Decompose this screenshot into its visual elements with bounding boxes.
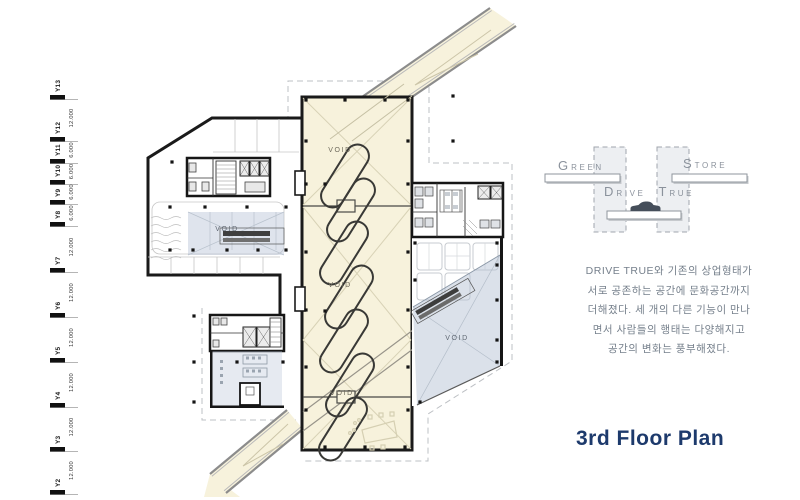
grid-ruler: Y1312.000Y126.000Y116.000Y106.000Y96.000… (50, 80, 78, 495)
grid-tick (50, 200, 65, 205)
grid-dimension: 6.000 (69, 184, 75, 200)
grid-dimension: 12.000 (69, 283, 75, 302)
grid-tick (50, 268, 65, 273)
grid-label: Y10 (55, 165, 62, 177)
void-label-strip-bottom: VOID (330, 390, 354, 397)
left-core (187, 158, 270, 196)
grid-dimension: 6.000 (69, 164, 75, 180)
grid-dimension: 12.000 (69, 461, 75, 480)
kiosk-room (240, 383, 260, 405)
grid-dimension: 12.000 (69, 418, 75, 437)
grid-dimension: 12.000 (69, 373, 75, 392)
grid-tick (50, 95, 65, 100)
grid-label: Y3 (55, 435, 62, 444)
grid-label: Y9 (55, 188, 62, 197)
central-ramp-strip (295, 84, 413, 465)
grid-dimension: 12.000 (69, 328, 75, 347)
void-label-left-wing: VOID (215, 226, 239, 233)
grid-dimension: 12.000 (69, 109, 75, 128)
car-icon (631, 202, 661, 212)
grid-tick (50, 159, 65, 164)
grid-tick (50, 137, 65, 142)
diagram-bars (545, 174, 749, 221)
grid-label: Y12 (55, 122, 62, 134)
grid-label: Y2 (55, 478, 62, 487)
grid-label: Y6 (55, 301, 62, 310)
floor-plan-canvas: Y1312.000Y126.000Y116.000Y106.000Y96.000… (0, 0, 800, 500)
grid-label: Y13 (55, 80, 62, 92)
grid-tick (50, 447, 65, 452)
lower-left-block (210, 315, 284, 408)
grid-dimension: 12.000 (69, 238, 75, 257)
void-label-strip-top: VOID (328, 147, 352, 154)
presentation-board: { "title": { "label": "3rd Floor Plan" }… (0, 0, 800, 500)
void-label-right-wing: VOID (445, 335, 469, 342)
grid-label: Y8 (55, 210, 62, 219)
grid-tick (50, 358, 65, 363)
right-wing (411, 183, 503, 406)
grid-tick (50, 222, 65, 227)
grid-label: Y4 (55, 391, 62, 400)
grid-label: Y5 (55, 346, 62, 355)
concept-diagram (545, 147, 749, 232)
grid-dimension: 6.000 (69, 142, 75, 158)
grid-tick (50, 403, 65, 408)
grid-label: Y7 (55, 256, 62, 265)
grid-dimension: 6.000 (69, 205, 75, 221)
right-core (412, 183, 503, 237)
left-void (188, 212, 284, 255)
lower-ramp (204, 410, 303, 497)
grid-tick (50, 490, 65, 495)
grid-label: Y11 (55, 144, 62, 156)
void-label-strip-mid: VOID (328, 282, 352, 289)
grid-tick (50, 180, 65, 185)
left-wing (148, 118, 302, 318)
grid-tick (50, 313, 65, 318)
